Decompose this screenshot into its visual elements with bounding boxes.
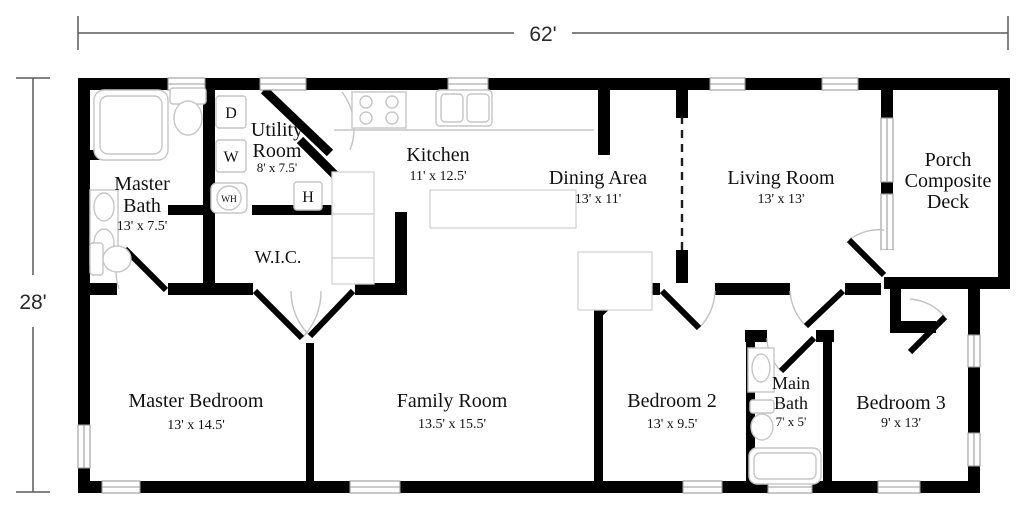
height-dimension-label: 28' <box>19 291 46 314</box>
svg-text:13' x 7.5': 13' x 7.5' <box>117 219 168 234</box>
svg-text:Living Room: Living Room <box>727 167 835 189</box>
wall <box>78 78 1010 90</box>
svg-text:9' x 13': 9' x 13' <box>881 416 921 431</box>
room-label-utility: Utility Room 8' x 7.5' <box>251 119 303 175</box>
svg-text:Bath: Bath <box>123 195 161 217</box>
svg-text:WH: WH <box>221 195 237 205</box>
window <box>881 194 893 250</box>
svg-text:Deck: Deck <box>927 191 969 213</box>
furnace-icon: H <box>294 182 322 210</box>
doors <box>116 92 945 371</box>
bathtub-icon <box>749 448 821 484</box>
water-heater-icon: WH <box>211 183 247 213</box>
svg-text:Bath: Bath <box>774 393 808 413</box>
room-label-kitchen: Kitchen 11' x 12.5' <box>406 144 469 184</box>
kitchen-sink-icon <box>436 90 492 126</box>
width-dimension-label: 62' <box>529 23 556 46</box>
door-swing <box>291 291 353 336</box>
svg-text:Main: Main <box>772 373 810 393</box>
svg-text:13' x 9.5': 13' x 9.5' <box>647 417 698 432</box>
window <box>448 78 488 90</box>
svg-text:Family Room: Family Room <box>397 390 508 412</box>
wall <box>715 283 790 295</box>
floor-plan-drawing: 62' 28' <box>0 0 1024 509</box>
svg-text:Porch: Porch <box>925 149 972 171</box>
room-label-master-bedroom: Master Bedroom 13' x 14.5' <box>129 390 264 433</box>
wall <box>598 90 610 155</box>
wall <box>168 205 208 215</box>
wall <box>78 481 980 493</box>
svg-text:Utility: Utility <box>251 119 303 141</box>
svg-text:8' x 7.5': 8' x 7.5' <box>257 160 297 175</box>
wall <box>845 283 881 295</box>
window <box>881 118 893 182</box>
vanity-sink-icon <box>748 348 774 392</box>
svg-text:W: W <box>223 149 239 166</box>
svg-text:D: D <box>225 105 237 122</box>
bathtub-icon <box>94 90 168 160</box>
room-label-wic: W.I.C. <box>255 247 302 267</box>
wall <box>676 250 688 283</box>
kitchen-island <box>430 190 576 228</box>
wall <box>745 330 767 342</box>
svg-text:Kitchen: Kitchen <box>406 144 469 166</box>
window <box>350 481 400 493</box>
wall <box>355 283 407 295</box>
room-label-family: Family Room 13.5' x 15.5' <box>397 390 508 432</box>
washer-icon: W <box>216 140 246 172</box>
room-label-master-bath: Master Bath 13' x 7.5' <box>114 173 170 234</box>
wall <box>306 343 314 481</box>
window <box>260 78 306 90</box>
toilet-icon <box>170 88 206 135</box>
wall <box>90 283 117 295</box>
toilet-icon <box>90 243 131 275</box>
window <box>710 78 745 90</box>
room-label-porch: Porch Composite Deck <box>905 149 992 213</box>
svg-text:Bedroom 3: Bedroom 3 <box>856 392 945 414</box>
wall <box>594 295 603 481</box>
svg-text:Bedroom 2: Bedroom 2 <box>627 390 716 412</box>
window <box>102 481 140 493</box>
svg-text:Room: Room <box>253 140 302 162</box>
room-label-bedroom3: Bedroom 3 9' x 13' <box>856 392 945 431</box>
toilet-icon <box>750 400 774 440</box>
width-dimension: 62' <box>78 16 1008 50</box>
svg-text:W.I.C.: W.I.C. <box>255 247 302 267</box>
svg-text:7' x 5': 7' x 5' <box>776 414 807 429</box>
room-label-living: Living Room 13' x 13' <box>727 167 835 207</box>
height-dimension: 28' <box>16 78 50 492</box>
svg-text:13' x 14.5': 13' x 14.5' <box>167 418 225 433</box>
door-swing <box>790 291 843 326</box>
svg-text:Master Bedroom: Master Bedroom <box>129 390 264 412</box>
window <box>968 433 980 466</box>
wall <box>168 283 253 295</box>
room-label-bedroom2: Bedroom 2 13' x 9.5' <box>627 390 716 432</box>
cabinet-icon <box>332 172 374 284</box>
door-swing <box>662 291 715 328</box>
dining-table <box>578 252 652 310</box>
svg-text:Master: Master <box>114 173 170 195</box>
window <box>878 481 920 493</box>
wall <box>823 330 832 481</box>
floor-plan: 62' 28' <box>0 0 1024 509</box>
svg-text:13' x 11': 13' x 11' <box>575 192 622 207</box>
svg-text:Composite: Composite <box>905 170 992 192</box>
window <box>822 78 858 90</box>
wall <box>676 90 688 118</box>
door-swing <box>849 230 884 275</box>
svg-text:Dining Area: Dining Area <box>549 167 647 189</box>
wall <box>998 78 1010 289</box>
svg-text:13.5' x 15.5': 13.5' x 15.5' <box>418 417 486 432</box>
dryer-icon: D <box>216 96 246 128</box>
stove-icon <box>352 92 406 128</box>
wall <box>395 212 407 295</box>
window <box>683 481 722 493</box>
window <box>968 335 980 367</box>
window <box>78 425 90 468</box>
svg-text:11' x 12.5': 11' x 12.5' <box>409 169 466 184</box>
svg-text:H: H <box>302 189 314 206</box>
room-label-main-bath: Main Bath 7' x 5' <box>772 373 810 429</box>
wall <box>884 277 1010 289</box>
svg-text:13' x 13': 13' x 13' <box>757 192 804 207</box>
